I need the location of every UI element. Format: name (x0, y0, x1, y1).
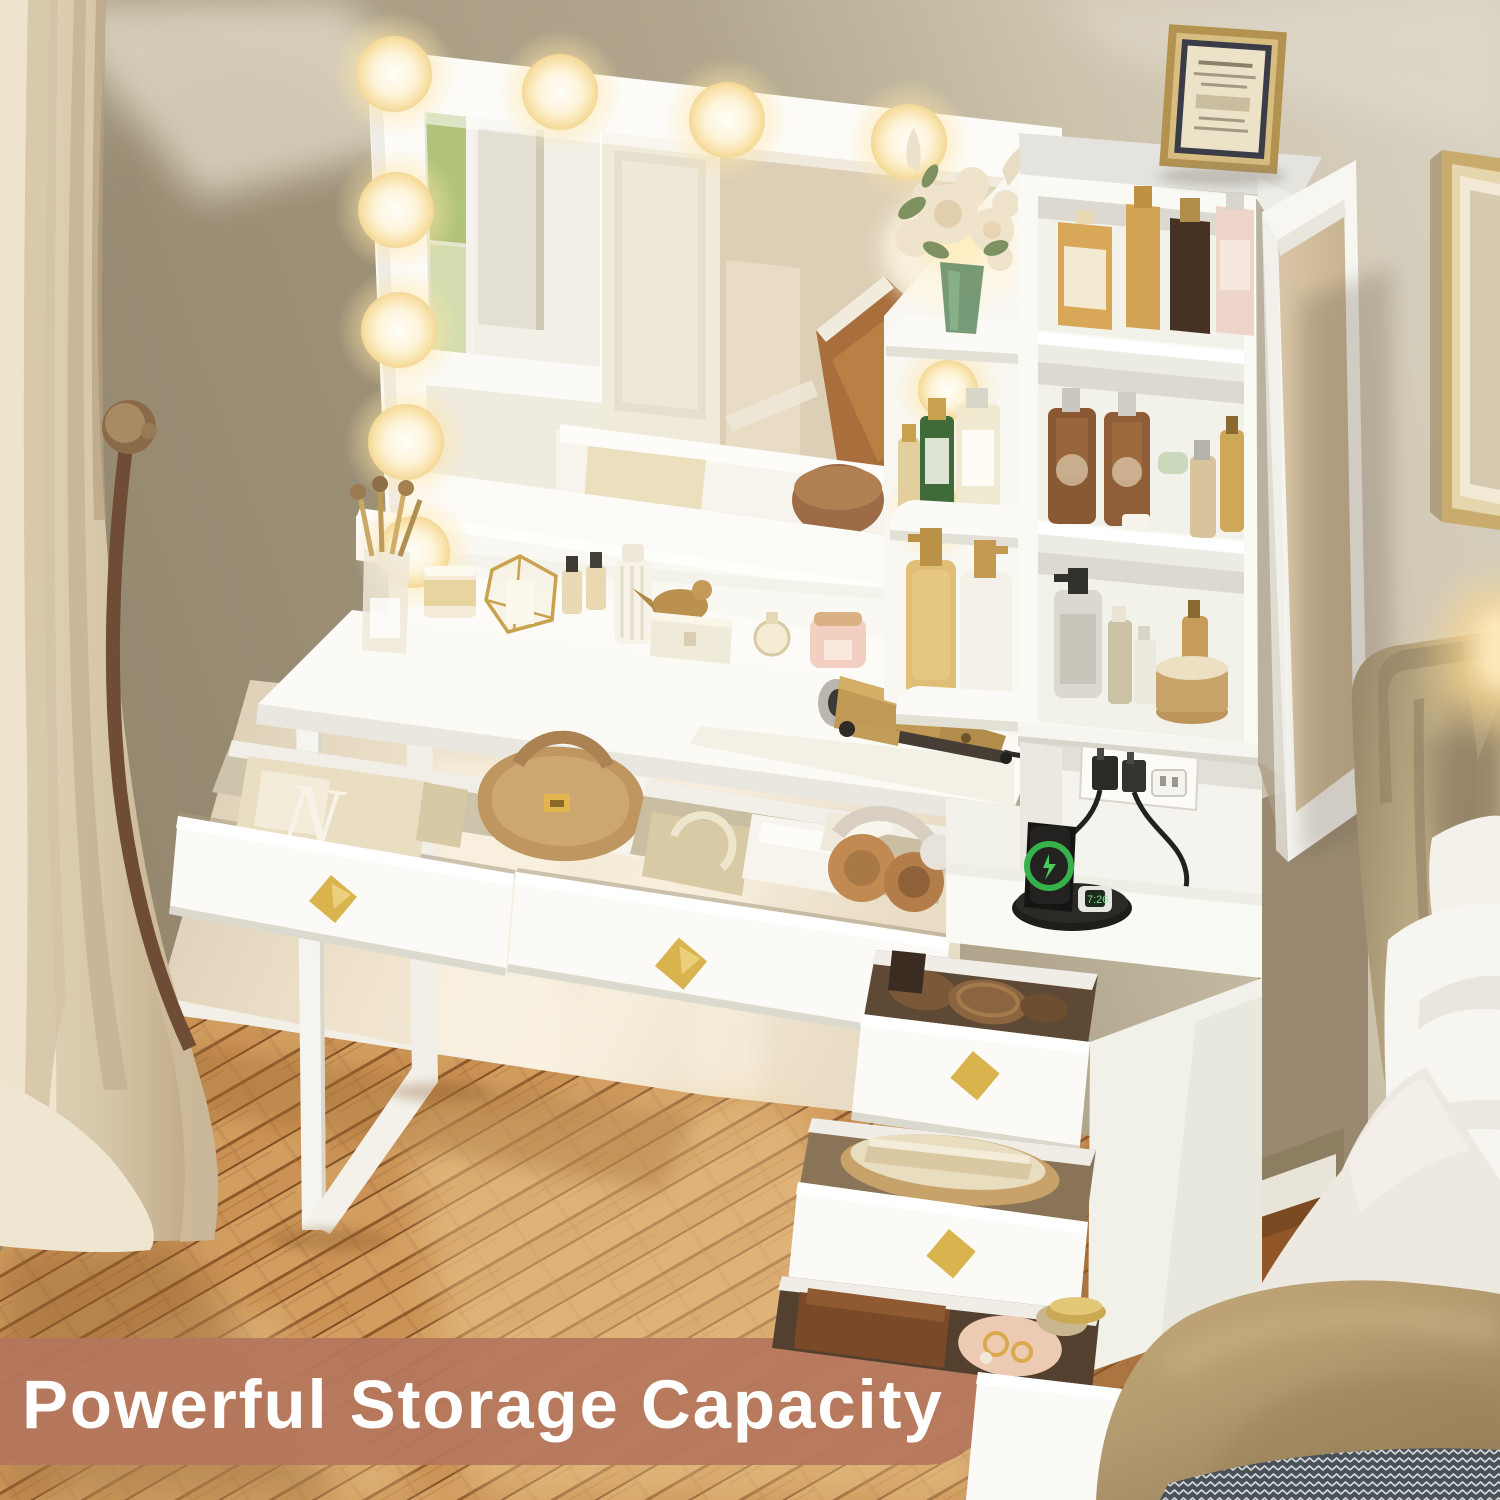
svg-text:7:26: 7:26 (1087, 894, 1108, 906)
svg-text:Powerful Storage Capacity: Powerful Storage Capacity (22, 1366, 944, 1443)
